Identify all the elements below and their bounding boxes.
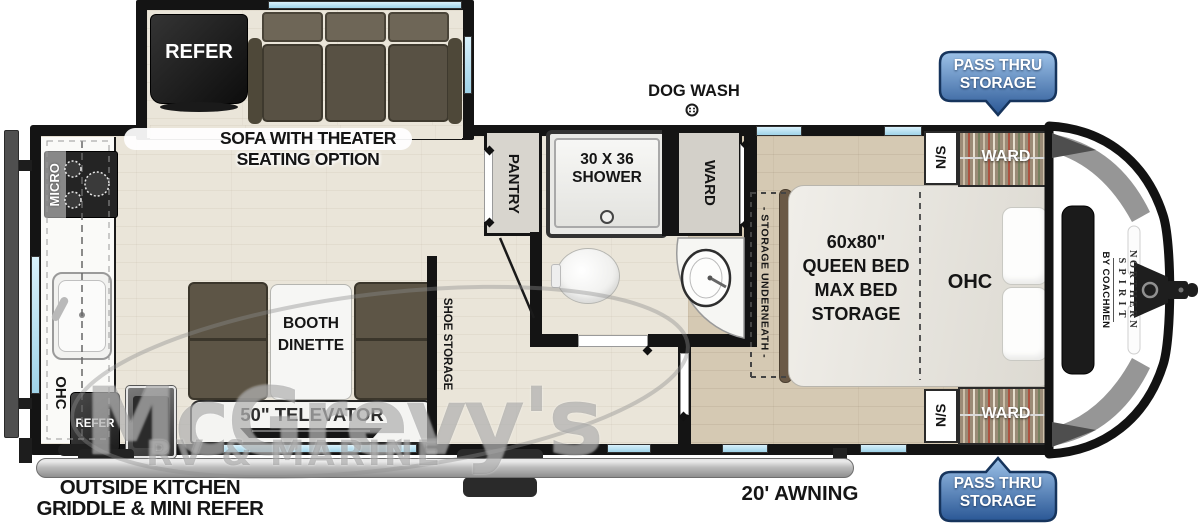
storage-underneath-label: - STORAGE UNDERNEATH -	[758, 183, 769, 383]
shoe-storage-wall	[427, 256, 437, 446]
flap-bracket-top	[19, 160, 32, 171]
pantry-label: PANTRY	[505, 144, 521, 224]
faucet-dot	[79, 312, 85, 318]
rear-wall-window	[31, 256, 40, 394]
refrigerator-base	[160, 102, 238, 112]
outside-kitchen-caption-line1: OUTSIDE KITCHEN	[20, 477, 280, 499]
bedroom-door	[680, 353, 689, 415]
micro-label: MICRO	[48, 155, 62, 215]
flap-bracket-bottom	[19, 398, 32, 409]
sofa-seat-cushion	[325, 44, 386, 122]
bottom-wall-window	[607, 444, 651, 453]
dinette-bench-right-seam	[356, 338, 432, 341]
toilet	[556, 248, 620, 304]
sofa-label-line1: SOFA WITH THEATER	[178, 129, 438, 147]
booth-label-line2: DINETTE	[270, 338, 352, 354]
bath-wall-right	[744, 130, 757, 347]
entry-step-lower	[463, 477, 537, 497]
awning-bar	[36, 458, 854, 478]
rear-bumper-corner	[19, 438, 32, 463]
dinette-bench-right	[354, 282, 434, 400]
pass-thru-top-line2: STORAGE	[937, 75, 1059, 93]
refrigerator-label: REFER	[150, 42, 248, 63]
shower-label-line1: 30 X 36	[546, 152, 668, 168]
slideout-side-window	[464, 36, 472, 94]
sofa-seat-cushion	[388, 44, 449, 122]
brand-line1: NORTHERN	[1127, 230, 1138, 350]
bed-label-line1: 60x80"	[776, 233, 936, 252]
pass-thru-bottom-line2: STORAGE	[937, 493, 1059, 511]
hitch-coupler	[1186, 283, 1198, 297]
dog-wash-label: DOG WASH	[634, 83, 754, 100]
tongue-jack	[1143, 283, 1157, 297]
sofa-back-cushion	[388, 12, 449, 42]
bottom-wall-window	[722, 444, 768, 453]
shower-drain	[600, 210, 614, 224]
kitchen-ohc-label: OHC	[52, 371, 68, 415]
griddle-appliance-panel	[133, 396, 169, 448]
top-wall-window	[884, 126, 922, 136]
pantry-door	[484, 150, 493, 222]
sofa-back-cushion	[262, 12, 323, 42]
brand-line3: BY COACHMEN	[1100, 230, 1111, 350]
pass-thru-top-line1: PASS THRU	[937, 57, 1059, 75]
slideout-top-window	[268, 1, 462, 9]
sofa-back-cushion	[325, 12, 386, 42]
sofa-seat-cushion	[262, 44, 323, 122]
booth-label-line1: BOOTH	[270, 316, 352, 332]
brand-line2: SPIRIT	[1116, 230, 1127, 350]
bath-wall-bottom-right	[648, 334, 757, 347]
toilet-tank	[551, 264, 561, 288]
nightstand-top-label: N/S	[934, 137, 949, 177]
nightstand-bottom-label: N/S	[934, 395, 949, 435]
bed-label-line3: MAX BED	[776, 281, 936, 300]
bottom-wall-window	[860, 444, 907, 453]
bath-door	[578, 335, 648, 347]
rv-floorplan: REFER SOFA WITH THEATER SEATING OPTION M…	[0, 0, 1200, 524]
dog-wash-icon	[684, 102, 700, 118]
sofa-label-line2: SEATING OPTION	[178, 150, 438, 168]
bed-label-line2: QUEEN BED	[776, 257, 936, 276]
bed-label-line4: STORAGE	[776, 305, 936, 324]
bedroom-ohc-label: OHC	[944, 272, 996, 293]
top-wall-window	[756, 126, 802, 136]
shoe-storage-label: SHOE STORAGE	[441, 288, 453, 400]
sofa-armrest-left	[248, 38, 262, 124]
mini-refrigerator-label: REFER	[70, 418, 120, 430]
televator-label: 50" TELEVATOR	[190, 405, 434, 424]
sofa	[248, 12, 462, 124]
shower-label-line2: SHOWER	[546, 170, 668, 186]
dinette-bench-left	[188, 282, 268, 400]
pass-thru-bottom-line1: PASS THRU	[937, 475, 1059, 493]
bath-wall-left	[530, 232, 542, 347]
outside-kitchen-flap	[4, 130, 19, 438]
brand-logo: NORTHERN SPIRIT BY COACHMEN	[1078, 230, 1138, 350]
bottom-wall-window-long	[223, 444, 417, 453]
hitch-tongue	[1166, 281, 1188, 299]
outside-kitchen-caption-line2: GRIDDLE & MINI REFER	[5, 498, 295, 520]
dinette-bench-left-seam	[190, 338, 266, 341]
bath-wall-bottom-left	[530, 334, 578, 347]
bath-wardrobe-label: WARD	[701, 148, 717, 218]
sofa-armrest-right	[448, 38, 462, 124]
brand-divider	[1113, 258, 1114, 322]
awning-caption: 20' AWNING	[715, 483, 885, 505]
